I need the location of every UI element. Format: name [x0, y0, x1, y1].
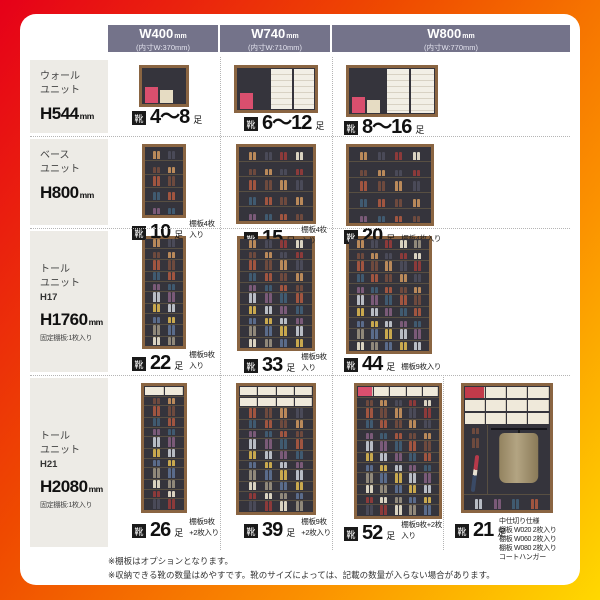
- cabinet-image: [142, 236, 186, 349]
- coat-hanger-cabinet-image: [461, 383, 553, 513]
- unit-type-label: トールユニット: [40, 430, 100, 457]
- cell-h2080-w740: 靴 39 足 棚板9枚+2枚入り: [220, 375, 332, 550]
- shelf-note: 棚板9枚入り: [301, 351, 332, 373]
- column-divider: [332, 57, 333, 550]
- capacity-caption: 靴 44 足 棚板9枚入り: [332, 354, 570, 374]
- cell-h800-w400: 靴 10 足 棚板4枚入り: [108, 136, 220, 228]
- row-divider: [30, 375, 570, 376]
- fixed-shelf-note: 固定棚板:1枚入り: [40, 500, 100, 510]
- cabinet-image: [237, 236, 315, 351]
- capacity-count: 4〜8: [150, 107, 189, 127]
- pairs-counter: 足: [193, 113, 202, 126]
- capacity-caption: 靴 33 足 棚板9枚入り: [220, 351, 332, 375]
- spec-sheet-panel: W400mm (内寸W:370mm) W740mm (内寸W:710mm) W8…: [20, 14, 580, 585]
- capacity-caption: 靴 21 足 中仕切り仕様 棚板 W020 2枚入り 棚板 W060 2枚入り …: [443, 520, 570, 540]
- cell-h800-w800: 靴 20 足 棚板4枚入り: [332, 136, 570, 228]
- unit-code: H17: [40, 292, 100, 303]
- capacity-count: 26: [150, 520, 170, 540]
- cell-h1760-w740: 靴 33 足 棚板9枚入り: [220, 228, 332, 375]
- capacity-count: 52: [362, 523, 382, 543]
- capacity-caption: 靴 4〜8 足: [108, 107, 220, 127]
- cell-h1760-w400: 靴 22 足 棚板9枚入り: [108, 228, 220, 375]
- pairs-counter: 足: [174, 359, 183, 372]
- cabinet-image: [354, 383, 442, 519]
- shoe-icon: 靴: [344, 358, 358, 372]
- capacity-count: 21: [473, 520, 493, 540]
- row-divider: [30, 228, 570, 229]
- cell-h2080-w400: 靴 26 足 棚板9枚+2枚入り: [108, 375, 220, 550]
- pairs-counter: 足: [415, 123, 424, 136]
- pairs-counter: 足: [286, 526, 295, 539]
- shoe-icon: 靴: [244, 117, 258, 131]
- shoe-icon: 靴: [244, 359, 258, 373]
- width-title: W800mm: [332, 27, 570, 43]
- shelf-note: 棚板4枚入り: [189, 218, 220, 240]
- capacity-count: 22: [150, 353, 170, 373]
- capacity-count: 39: [262, 520, 282, 540]
- unit-type-label: ウォールユニット: [40, 70, 100, 97]
- pairs-counter: 足: [386, 529, 395, 542]
- shelf-note: 棚板9枚入り: [401, 361, 441, 372]
- spec-table: ウォールユニット H544mm 靴 4〜8 足 靴 6〜: [30, 57, 570, 550]
- column-header-w740: W740mm (内寸W:710mm): [220, 25, 332, 52]
- shoe-icon: 靴: [344, 527, 358, 541]
- shoe-icon: 靴: [132, 524, 146, 538]
- fixed-shelf-note: 固定棚板:1枚入り: [40, 333, 100, 343]
- unit-height-label: H2080mm: [40, 477, 100, 497]
- shoe-icon: 靴: [132, 111, 146, 125]
- capacity-count: 6〜12: [262, 113, 311, 133]
- capacity-count: 33: [262, 355, 282, 375]
- capacity-count: 8〜16: [362, 117, 411, 137]
- capacity-caption: 靴 8〜16 足: [332, 117, 570, 137]
- table-row-base-unit: ベースユニット H800mm 靴 10 足 棚板4枚入り: [30, 136, 570, 228]
- width-title: W400mm: [108, 27, 218, 43]
- column-header-w400: W400mm (内寸W:370mm): [108, 25, 220, 52]
- cell-h2080-w800: 靴 52 足 棚板9枚+2枚入り: [332, 375, 443, 550]
- pairs-counter: 足: [174, 526, 183, 539]
- width-column-headers: W400mm (内寸W:370mm) W740mm (内寸W:710mm) W8…: [108, 25, 570, 52]
- shelf-note: 棚板9枚+2枚入り: [401, 519, 443, 541]
- shelf-note: 棚板9枚+2枚入り: [189, 516, 220, 538]
- inner-width-label: (内寸W:370mm): [108, 43, 218, 52]
- footnote-line: ※棚板はオプションとなります。: [108, 554, 495, 568]
- cabinet-image: [346, 65, 438, 117]
- unit-code: H21: [40, 459, 100, 470]
- row-divider: [30, 136, 570, 137]
- shoe-icon: 靴: [344, 121, 358, 135]
- cabinet-image: [236, 144, 316, 224]
- cabinet-image: [142, 144, 186, 218]
- column-header-w800: W800mm (内寸W:770mm): [332, 25, 570, 52]
- capacity-caption: 靴 6〜12 足: [220, 113, 332, 133]
- pairs-counter: 足: [315, 119, 324, 132]
- column-divider: [443, 375, 444, 550]
- cabinet-image: [139, 65, 189, 107]
- option-notes: 中仕切り仕様 棚板 W020 2枚入り 棚板 W060 2枚入り 棚板 W080…: [499, 517, 600, 562]
- pairs-counter: 足: [286, 361, 295, 374]
- unit-height-label: H800mm: [40, 183, 100, 203]
- shelf-note: 棚板9枚+2枚入り: [301, 516, 332, 538]
- width-title: W740mm: [220, 27, 330, 43]
- row-label-tall-unit-h21: トールユニット H21 H2080mm 固定棚板:1枚入り: [30, 378, 108, 547]
- cabinet-image: [346, 144, 434, 226]
- capacity-caption: 靴 26 足 棚板9枚+2枚入り: [108, 516, 220, 540]
- cabinet-image: [234, 65, 318, 113]
- capacity-caption: 靴 39 足 棚板9枚+2枚入り: [220, 516, 332, 540]
- shoe-icon: 靴: [455, 524, 469, 538]
- inner-width-label: (内寸W:710mm): [220, 43, 330, 52]
- unit-height-label: H1760mm: [40, 310, 100, 330]
- cabinet-image: [141, 383, 187, 513]
- shoe-icon: 靴: [244, 524, 258, 538]
- row-label-tall-unit-h17: トールユニット H17 H1760mm 固定棚板:1枚入り: [30, 231, 108, 372]
- table-row-tall-unit-h21: トールユニット H21 H2080mm 固定棚板:1枚入り 靴 26 足 棚板9…: [30, 375, 570, 550]
- page-background: W400mm (内寸W:370mm) W740mm (内寸W:710mm) W8…: [0, 0, 600, 600]
- unit-type-label: ベースユニット: [40, 149, 100, 176]
- footnotes: ※棚板はオプションとなります。 ※収納できる靴の数量はめやすです。靴のサイズによ…: [108, 554, 495, 582]
- cell-h2080-w800-coat-hanger: 靴 21 足 中仕切り仕様 棚板 W020 2枚入り 棚板 W060 2枚入り …: [443, 375, 570, 550]
- cell-h544-w800: 靴 8〜16 足: [332, 57, 570, 136]
- unit-type-label: トールユニット: [40, 263, 100, 290]
- cell-h1760-w800: 靴 44 足 棚板9枚入り: [332, 228, 570, 375]
- row-label-base-unit: ベースユニット H800mm: [30, 139, 108, 225]
- cabinet-image: [236, 383, 316, 515]
- cabinet-image: [346, 236, 432, 354]
- unit-height-label: H544mm: [40, 104, 100, 124]
- cell-h800-w740: 靴 15 足 棚板4枚入り: [220, 136, 332, 228]
- row-label-wall-unit: ウォールユニット H544mm: [30, 60, 108, 133]
- shoe-icon: 靴: [132, 357, 146, 371]
- cell-h544-w740: 靴 6〜12 足: [220, 57, 332, 136]
- pairs-counter: 足: [386, 360, 395, 373]
- table-row-wall-unit: ウォールユニット H544mm 靴 4〜8 足 靴 6〜: [30, 57, 570, 136]
- capacity-caption: 靴 22 足 棚板9枚入り: [108, 349, 220, 373]
- cell-h544-w400: 靴 4〜8 足: [108, 57, 220, 136]
- inner-width-label: (内寸W:770mm): [332, 43, 570, 52]
- capacity-caption: 靴 52 足 棚板9枚+2枚入り: [332, 519, 443, 543]
- table-row-tall-unit-h17: トールユニット H17 H1760mm 固定棚板:1枚入り 靴 22 足 棚板9…: [30, 228, 570, 375]
- footnote-line: ※収納できる靴の数量はめやすです。靴のサイズによっては、記載の数量が入らない場合…: [108, 568, 495, 582]
- shelf-note: 棚板9枚入り: [189, 349, 220, 371]
- capacity-count: 44: [362, 354, 382, 374]
- column-divider: [220, 57, 221, 550]
